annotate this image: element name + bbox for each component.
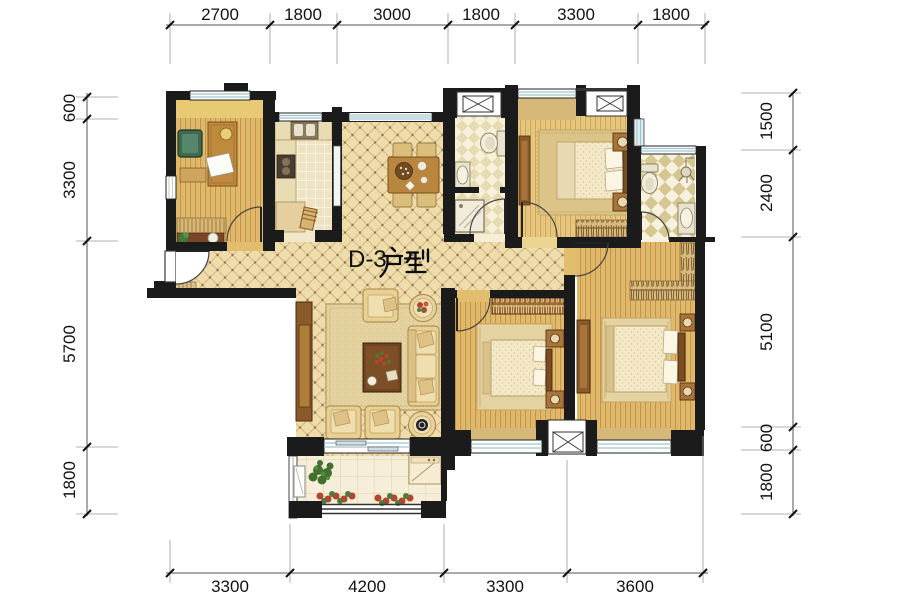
svg-text:3000: 3000 <box>373 5 411 24</box>
svg-text:1500: 1500 <box>757 102 776 140</box>
svg-text:600: 600 <box>757 424 776 452</box>
svg-text:3300: 3300 <box>60 161 79 199</box>
svg-text:2700: 2700 <box>201 5 239 24</box>
svg-text:5700: 5700 <box>60 325 79 363</box>
svg-text:3300: 3300 <box>211 577 249 596</box>
svg-text:1800: 1800 <box>60 461 79 499</box>
svg-text:600: 600 <box>60 94 79 122</box>
svg-text:1800: 1800 <box>652 5 690 24</box>
svg-text:D-3: D-3 <box>348 246 387 273</box>
svg-text:3300: 3300 <box>486 577 524 596</box>
svg-text:1800: 1800 <box>284 5 322 24</box>
svg-text:1800: 1800 <box>462 5 500 24</box>
svg-text:1800: 1800 <box>757 463 776 501</box>
svg-text:5100: 5100 <box>757 313 776 351</box>
svg-text:4200: 4200 <box>348 577 386 596</box>
svg-text:2400: 2400 <box>757 174 776 212</box>
svg-text:3600: 3600 <box>616 577 654 596</box>
svg-text:3300: 3300 <box>557 5 595 24</box>
